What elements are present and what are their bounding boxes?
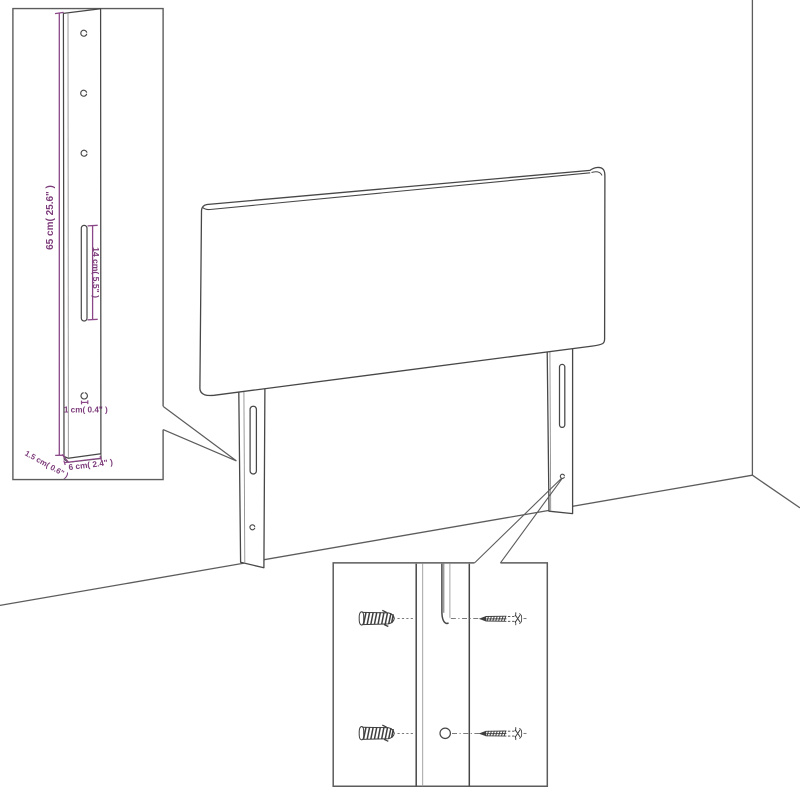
svg-text:14 cm( 5.5" ): 14 cm( 5.5" ) [91,247,101,298]
svg-text:65 cm( 25.6" ): 65 cm( 25.6" ) [45,185,56,250]
svg-text:1 cm( 0.4" ): 1 cm( 0.4" ) [64,405,108,414]
